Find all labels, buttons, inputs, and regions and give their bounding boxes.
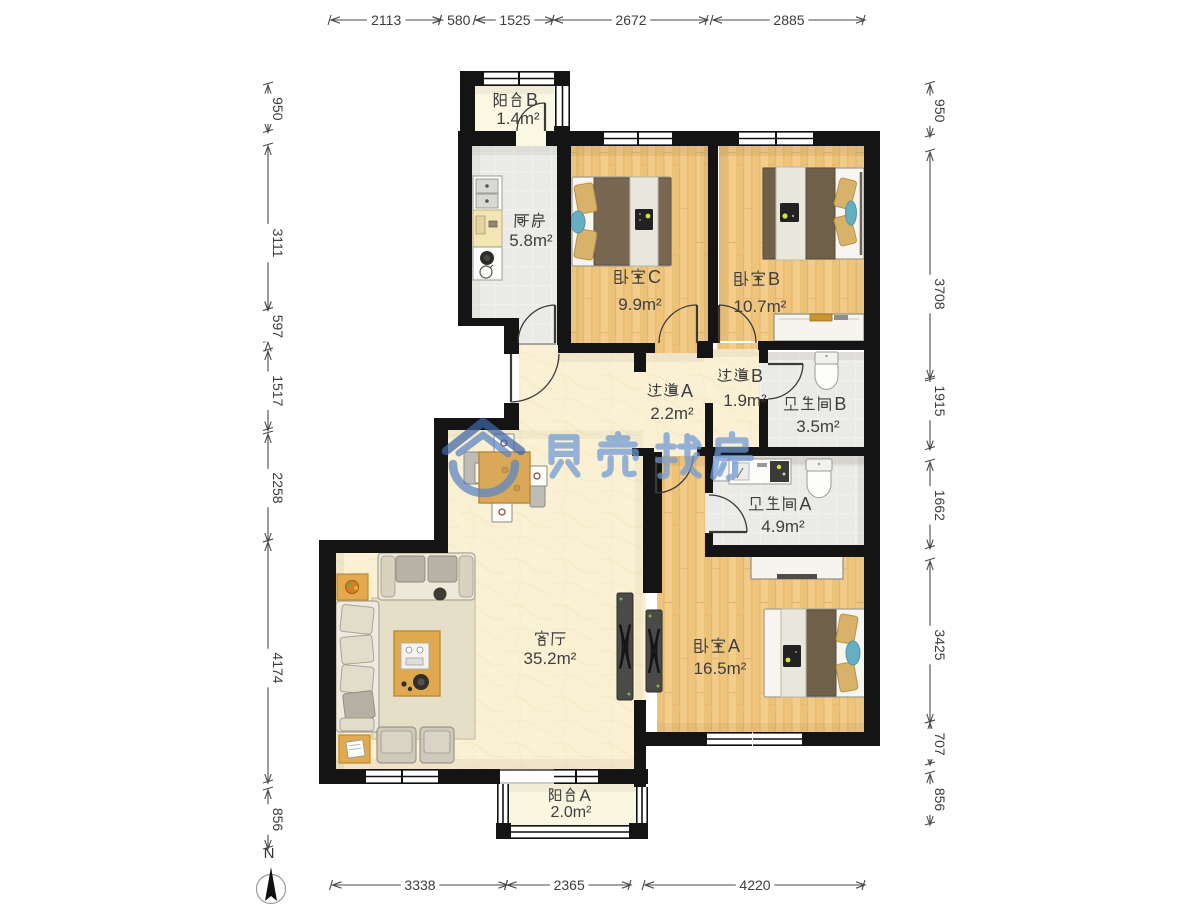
svg-text:3425: 3425 bbox=[932, 629, 948, 660]
svg-text:B: B bbox=[834, 394, 846, 414]
svg-text:1517: 1517 bbox=[270, 375, 286, 406]
svg-text:1.4m²: 1.4m² bbox=[496, 109, 540, 128]
svg-text:950: 950 bbox=[270, 97, 286, 121]
svg-text:2.0m²: 2.0m² bbox=[551, 804, 593, 821]
svg-text:A: A bbox=[681, 381, 693, 401]
svg-text:707: 707 bbox=[932, 732, 948, 756]
svg-text:C: C bbox=[648, 267, 661, 287]
svg-text:3338: 3338 bbox=[404, 877, 435, 893]
svg-text:B: B bbox=[768, 269, 780, 289]
svg-text:856: 856 bbox=[932, 788, 948, 812]
svg-text:A: A bbox=[579, 786, 591, 805]
svg-text:3708: 3708 bbox=[932, 278, 948, 309]
svg-text:9.9m²: 9.9m² bbox=[618, 295, 662, 314]
svg-text:3.5m²: 3.5m² bbox=[796, 417, 840, 436]
svg-text:A: A bbox=[728, 636, 740, 656]
svg-text:3111: 3111 bbox=[270, 228, 286, 257]
svg-text:2365: 2365 bbox=[554, 877, 585, 893]
svg-text:856: 856 bbox=[270, 808, 286, 832]
svg-text:B: B bbox=[751, 366, 763, 386]
svg-text:4174: 4174 bbox=[270, 652, 286, 683]
svg-text:1.9m²: 1.9m² bbox=[723, 391, 767, 410]
svg-text:2885: 2885 bbox=[773, 12, 804, 28]
svg-text:2113: 2113 bbox=[371, 12, 401, 28]
svg-text:4220: 4220 bbox=[739, 877, 770, 893]
svg-text:A: A bbox=[799, 494, 811, 514]
svg-text:1525: 1525 bbox=[499, 12, 530, 28]
svg-text:4.9m²: 4.9m² bbox=[761, 517, 805, 536]
svg-text:1662: 1662 bbox=[932, 490, 948, 521]
svg-text:10.7m²: 10.7m² bbox=[734, 297, 787, 316]
svg-text:5.8m²: 5.8m² bbox=[509, 231, 553, 250]
svg-text:950: 950 bbox=[932, 99, 948, 123]
svg-text:35.2m²: 35.2m² bbox=[524, 649, 577, 668]
svg-text:2672: 2672 bbox=[615, 12, 646, 28]
svg-text:597: 597 bbox=[270, 315, 286, 339]
svg-text:2258: 2258 bbox=[270, 472, 286, 503]
svg-text:B: B bbox=[526, 90, 538, 110]
svg-text:1915: 1915 bbox=[932, 385, 948, 416]
svg-text:16.5m²: 16.5m² bbox=[694, 659, 747, 678]
svg-text:580: 580 bbox=[447, 12, 471, 28]
svg-text:N: N bbox=[264, 845, 275, 862]
svg-text:2.2m²: 2.2m² bbox=[650, 404, 694, 423]
